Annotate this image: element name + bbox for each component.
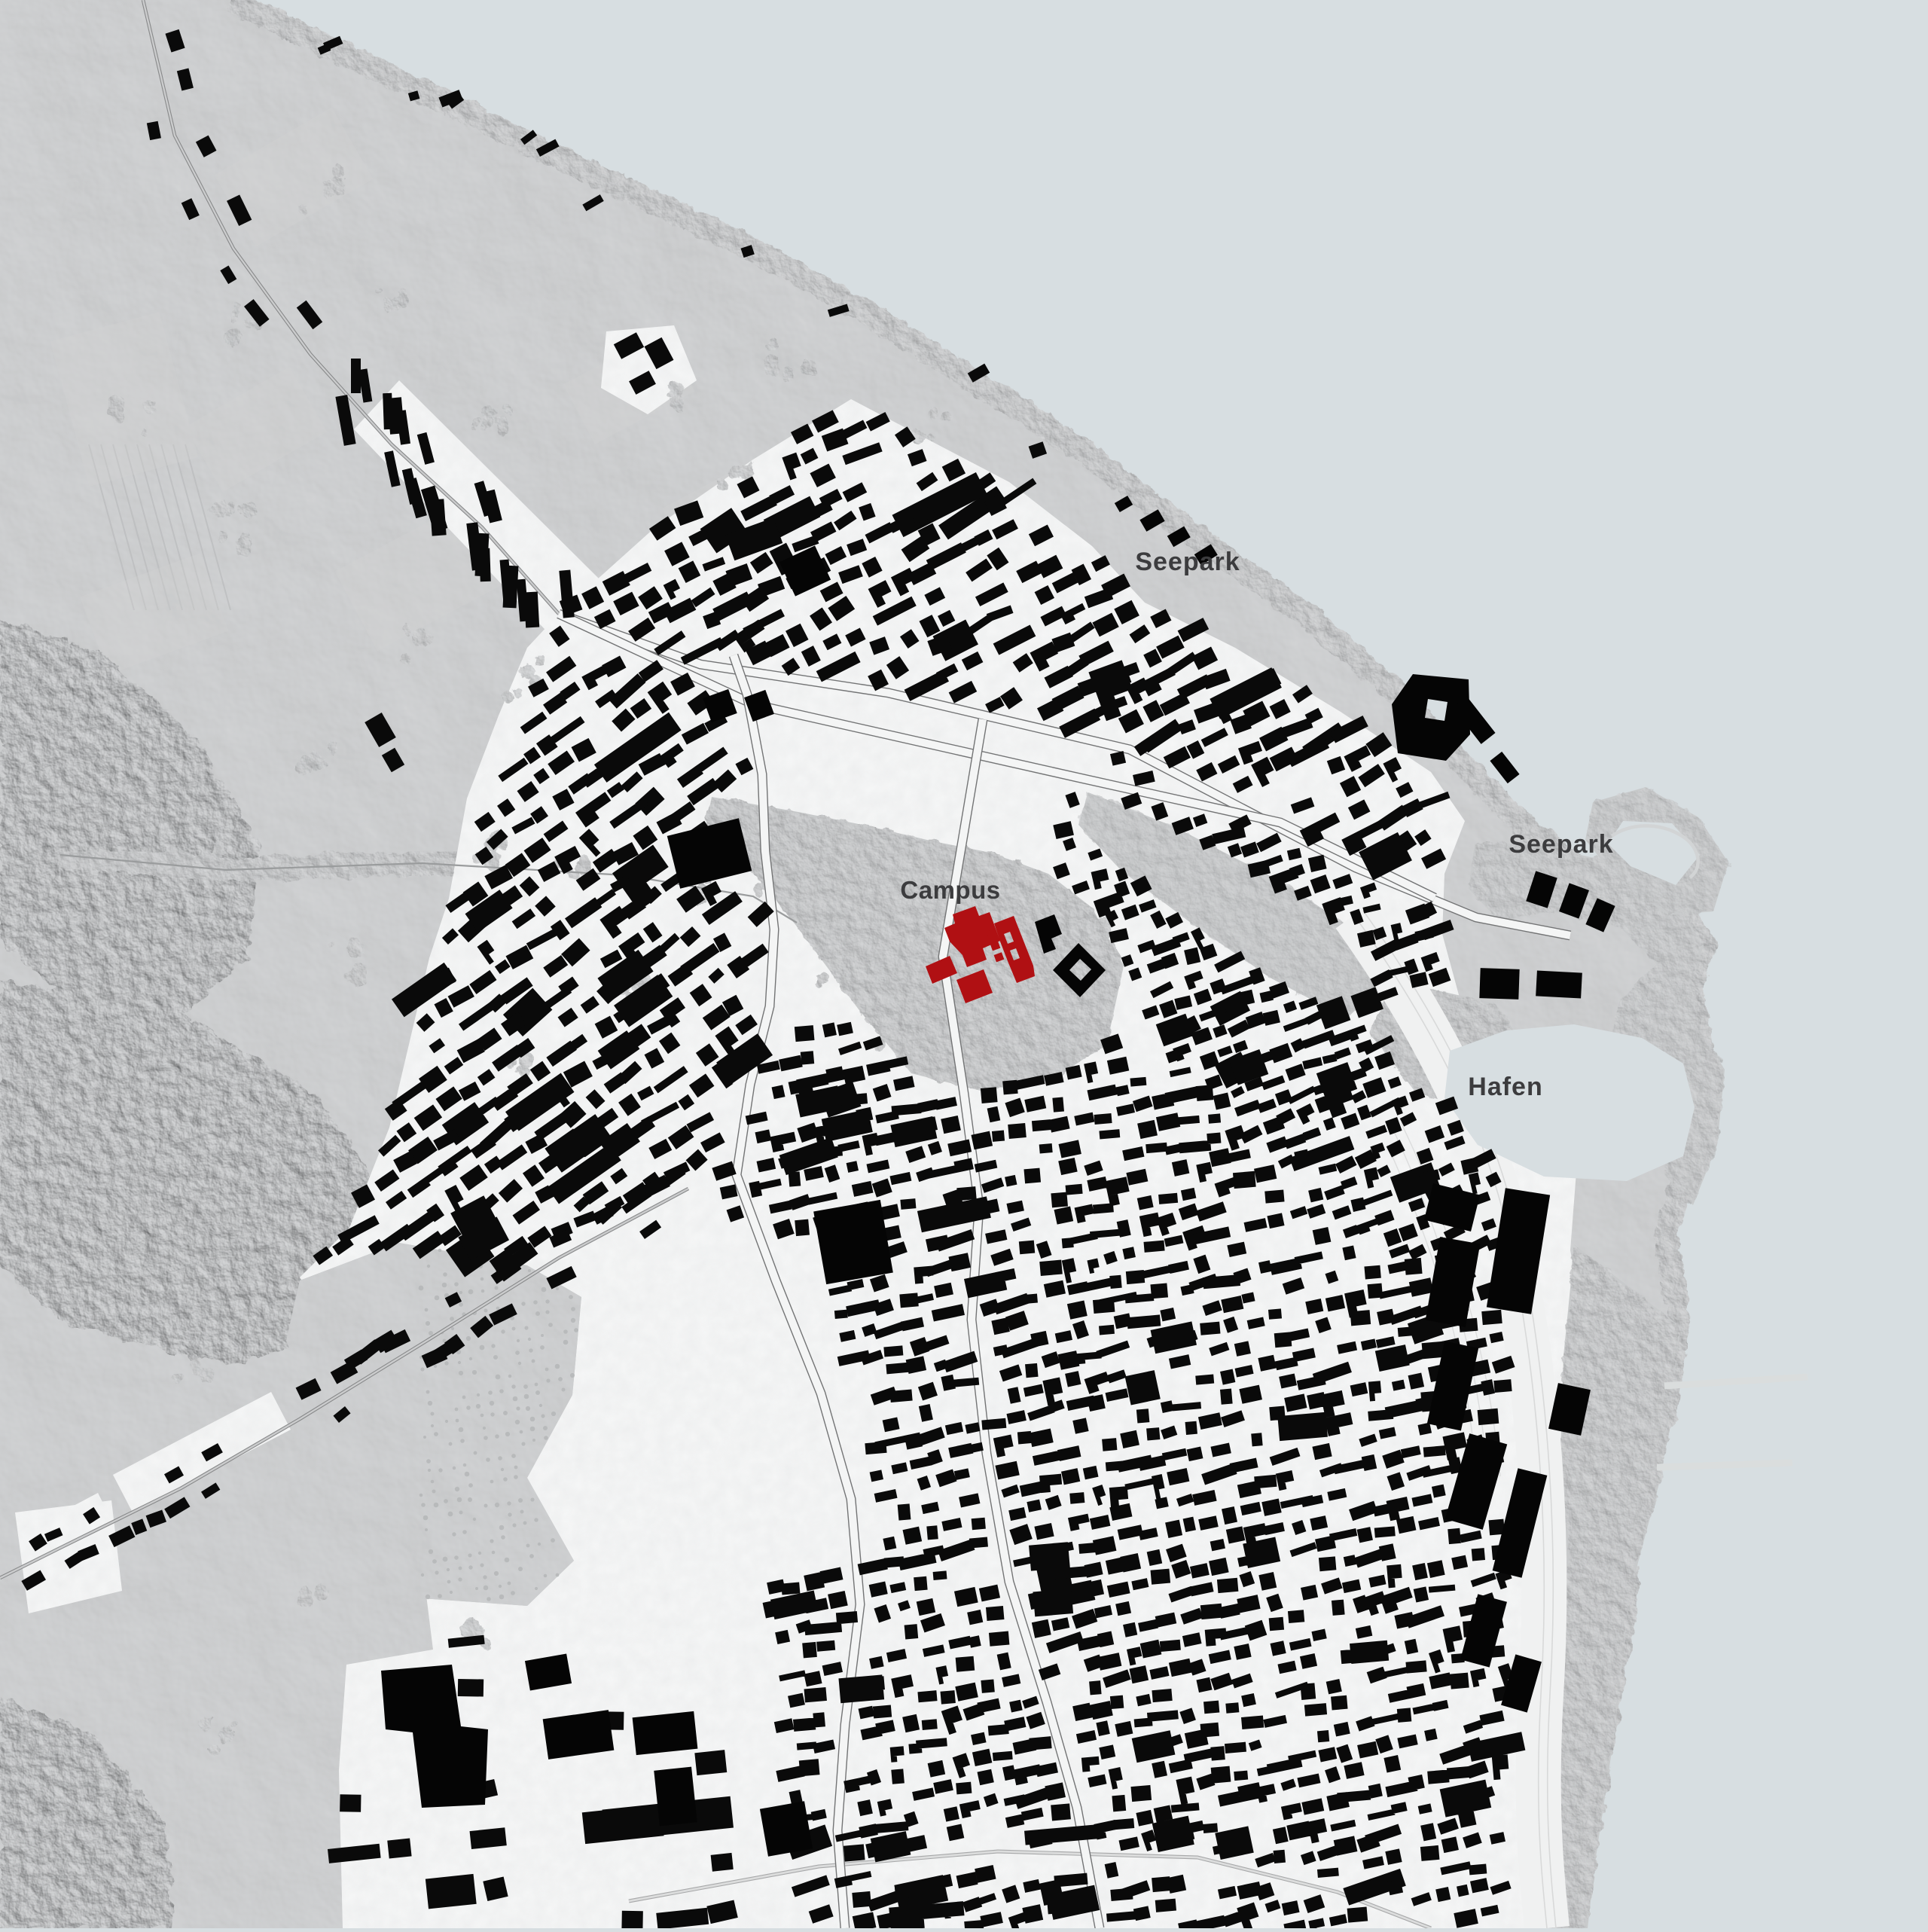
svg-text:Campus: Campus bbox=[900, 876, 1000, 904]
svg-text:Seepark: Seepark bbox=[1135, 548, 1240, 576]
svg-text:Seepark: Seepark bbox=[1509, 830, 1613, 859]
svg-text:Hafen: Hafen bbox=[1468, 1073, 1542, 1101]
